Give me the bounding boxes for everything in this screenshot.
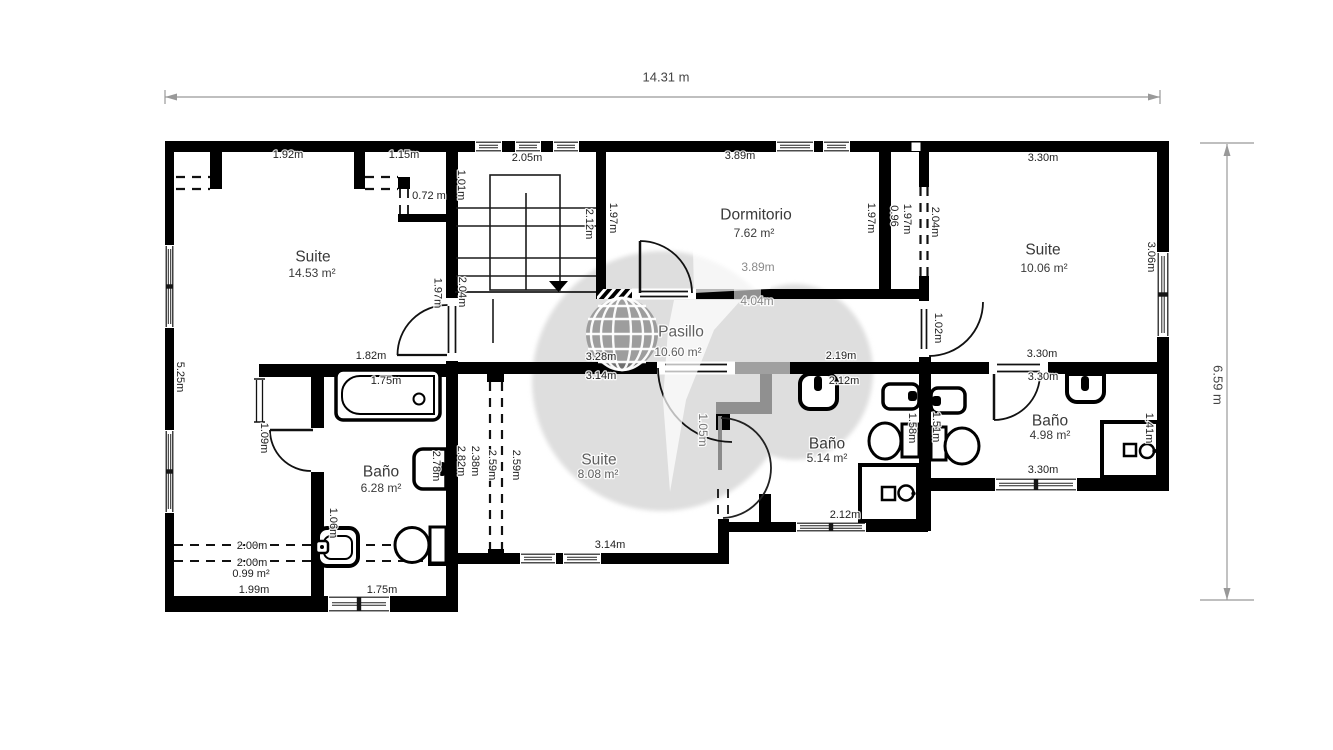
svg-text:Baño: Baño <box>363 464 399 481</box>
svg-text:1.92m: 1.92m <box>273 149 304 161</box>
svg-text:6.28 m²: 6.28 m² <box>361 481 402 495</box>
svg-text:Baño: Baño <box>1032 413 1068 430</box>
svg-text:1.09m: 1.09m <box>258 423 270 454</box>
svg-text:1.75m: 1.75m <box>367 584 398 596</box>
svg-text:2.59m: 2.59m <box>510 450 522 481</box>
svg-text:3.30m: 3.30m <box>1028 464 1059 476</box>
svg-text:1.02m: 1.02m <box>932 313 944 344</box>
svg-text:2.04m: 2.04m <box>929 207 941 238</box>
svg-text:1.75m: 1.75m <box>371 375 402 387</box>
svg-text:6.59 m: 6.59 m <box>1211 365 1226 405</box>
svg-text:0.96: 0.96 <box>888 205 900 226</box>
svg-text:1.51m: 1.51m <box>930 412 942 443</box>
svg-text:5.25m: 5.25m <box>174 362 186 393</box>
svg-text:1.97m: 1.97m <box>865 203 877 234</box>
svg-text:0.72 m: 0.72 m <box>412 190 446 202</box>
svg-text:2.00m: 2.00m <box>237 540 268 552</box>
svg-text:3.30m: 3.30m <box>1028 152 1059 164</box>
svg-text:0.99 m²: 0.99 m² <box>232 568 270 580</box>
svg-text:3.89m: 3.89m <box>741 260 774 274</box>
svg-text:2.05m: 2.05m <box>512 152 543 164</box>
svg-text:1.97m: 1.97m <box>901 204 913 235</box>
svg-text:1.99m: 1.99m <box>239 584 270 596</box>
svg-text:2.78m: 2.78m <box>430 451 442 482</box>
svg-text:1.06m: 1.06m <box>327 508 339 539</box>
svg-text:Suite: Suite <box>581 452 616 469</box>
svg-text:7.62 m²: 7.62 m² <box>734 226 775 240</box>
svg-text:2.59m: 2.59m <box>486 450 498 481</box>
svg-text:1.82m: 1.82m <box>356 350 387 362</box>
svg-text:8.08 m²: 8.08 m² <box>578 467 619 481</box>
svg-text:3.30m: 3.30m <box>1027 348 1058 360</box>
svg-text:10.06 m²: 10.06 m² <box>1020 261 1067 275</box>
svg-text:1.41m: 1.41m <box>1143 413 1155 444</box>
svg-text:2.82m: 2.82m <box>455 446 467 477</box>
svg-text:3.28m: 3.28m <box>586 351 617 363</box>
svg-text:3.14m: 3.14m <box>586 370 617 382</box>
svg-text:3.14m: 3.14m <box>595 539 626 551</box>
svg-text:2.12m: 2.12m <box>829 375 860 387</box>
svg-text:10.60 m²: 10.60 m² <box>654 345 701 359</box>
svg-text:14.53 m²: 14.53 m² <box>288 266 335 280</box>
svg-text:2.19m: 2.19m <box>826 350 857 362</box>
svg-text:1.05m: 1.05m <box>696 413 710 446</box>
svg-text:2.12m: 2.12m <box>583 209 595 240</box>
svg-text:2.12m: 2.12m <box>830 509 861 521</box>
svg-text:14.31 m: 14.31 m <box>643 70 690 85</box>
svg-text:3.30m: 3.30m <box>1028 371 1059 383</box>
svg-text:1.97m: 1.97m <box>607 203 619 234</box>
svg-text:Suite: Suite <box>1025 242 1060 259</box>
svg-text:3.89m: 3.89m <box>725 150 756 162</box>
svg-text:2.04m: 2.04m <box>456 277 468 308</box>
svg-text:Baño: Baño <box>809 436 845 453</box>
svg-text:3.06m: 3.06m <box>1145 242 1157 273</box>
svg-text:4.98 m²: 4.98 m² <box>1030 428 1071 442</box>
svg-text:Suite: Suite <box>295 249 330 266</box>
svg-text:1.01m: 1.01m <box>455 170 467 201</box>
svg-text:4.04m: 4.04m <box>740 294 773 308</box>
svg-text:5.14 m²: 5.14 m² <box>807 451 848 465</box>
svg-text:1.58m: 1.58m <box>906 413 918 444</box>
svg-text:Pasillo: Pasillo <box>658 324 704 341</box>
svg-text:Dormitorio: Dormitorio <box>720 207 791 224</box>
svg-text:2.38m: 2.38m <box>469 446 481 477</box>
svg-text:1.15m: 1.15m <box>389 149 420 161</box>
svg-text:1.97m: 1.97m <box>432 278 444 309</box>
